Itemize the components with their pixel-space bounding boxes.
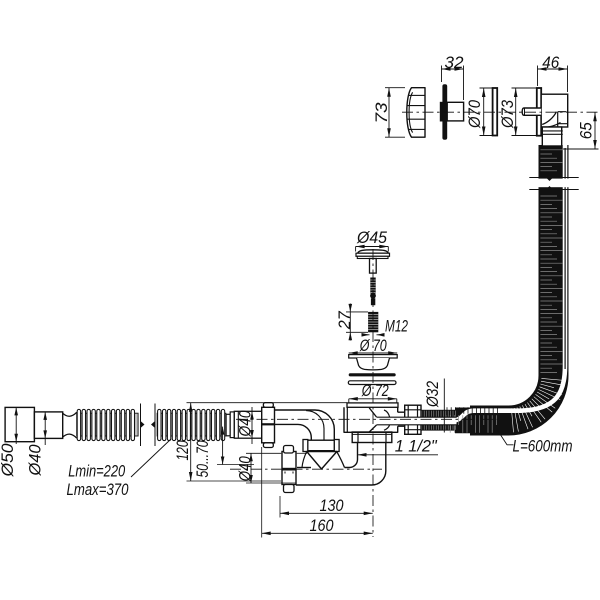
svg-text:27: 27 [336, 310, 354, 330]
svg-text:Lmax=370: Lmax=370 [67, 481, 129, 499]
svg-text:Ø73: Ø73 [499, 100, 517, 129]
svg-text:Ø40: Ø40 [237, 411, 255, 438]
svg-text:M12: M12 [385, 317, 408, 335]
svg-text:120: 120 [174, 441, 192, 461]
svg-text:65: 65 [578, 121, 596, 139]
svg-text:Ø 72: Ø 72 [361, 382, 389, 400]
svg-text:Ø45: Ø45 [356, 229, 388, 247]
svg-text:50...70: 50...70 [194, 441, 212, 478]
svg-text:32: 32 [445, 54, 464, 72]
svg-text:160: 160 [310, 517, 334, 535]
svg-text:Ø70: Ø70 [466, 100, 484, 129]
svg-text:130: 130 [320, 497, 344, 515]
svg-text:Ø 70: Ø 70 [359, 337, 387, 355]
svg-text:Ø40: Ø40 [236, 456, 254, 482]
svg-text:Ø32: Ø32 [424, 381, 442, 408]
svg-text:Ø50: Ø50 [0, 444, 17, 478]
svg-text:1 1/2": 1 1/2" [395, 437, 438, 455]
svg-text:73: 73 [373, 103, 391, 124]
svg-text:Lmin=220: Lmin=220 [68, 463, 125, 481]
svg-text:Ø40: Ø40 [27, 445, 45, 477]
svg-text:46: 46 [542, 54, 560, 72]
svg-text:L=600mm: L=600mm [513, 437, 573, 455]
